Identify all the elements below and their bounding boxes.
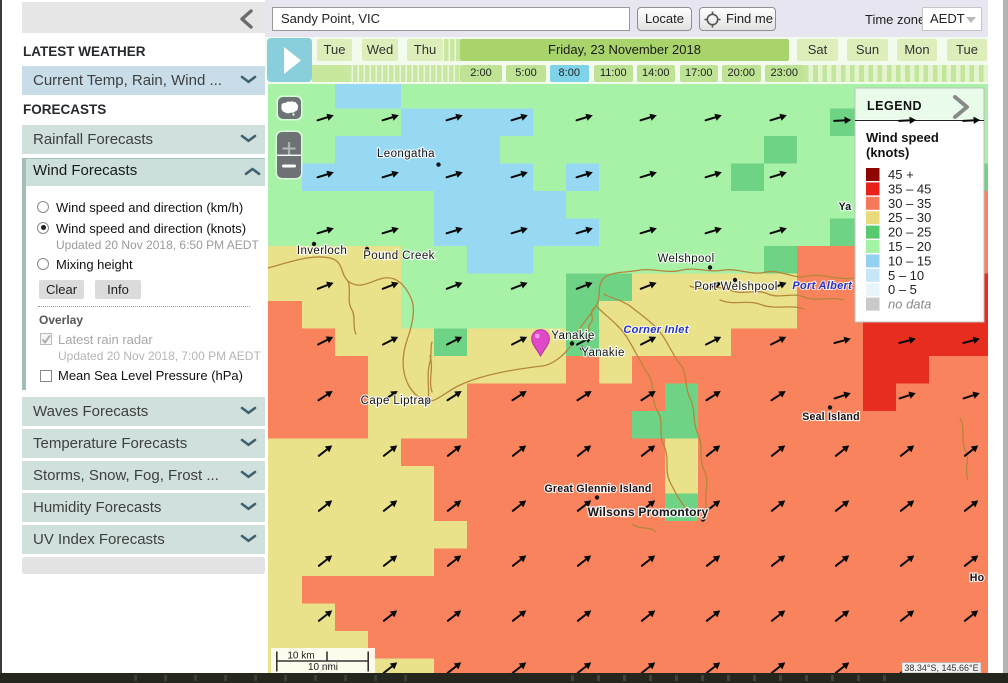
svg-text:LEGEND: LEGEND [867,99,922,113]
svg-text:Wind speed: Wind speed [866,130,939,145]
svg-text:15 – 20: 15 – 20 [888,239,931,254]
svg-text:0 – 5: 0 – 5 [888,282,917,297]
svg-text:10 – 15: 10 – 15 [888,253,931,268]
svg-text:Great Glennie Island: Great Glennie Island [544,483,651,495]
svg-text:35 – 45: 35 – 45 [888,181,931,196]
svg-text:5 – 10: 5 – 10 [888,268,924,283]
svg-text:Seal Island: Seal Island [802,411,860,423]
svg-text:Port Welshpool: Port Welshpool [694,281,777,293]
svg-text:Corner Inlet: Corner Inlet [623,324,689,336]
svg-text:(knots): (knots) [866,145,909,160]
svg-text:Ya: Ya [839,201,852,213]
svg-text:Wilsons Promontory: Wilsons Promontory [588,505,709,519]
svg-text:Port Albert C: Port Albert C [792,280,864,292]
svg-text:Ho: Ho [970,572,985,584]
svg-text:30 – 35: 30 – 35 [888,196,931,211]
svg-text:no data: no data [888,297,931,312]
svg-text:Yanakie: Yanakie [551,330,595,342]
svg-text:10 km: 10 km [287,651,314,662]
svg-text:Leongatha: Leongatha [377,148,435,160]
svg-text:20 – 25: 20 – 25 [888,225,931,240]
svg-text:Pound Creek: Pound Creek [363,250,435,262]
svg-text:38.34°S, 145.66°E: 38.34°S, 145.66°E [904,663,978,673]
svg-text:Yanakie: Yanakie [581,347,625,359]
svg-text:Inverloch: Inverloch [297,245,347,257]
svg-text:25 – 30: 25 – 30 [888,210,931,225]
svg-text:Welshpool: Welshpool [657,253,714,265]
svg-text:10 nmi: 10 nmi [308,662,338,673]
svg-text:Cape Liptrap: Cape Liptrap [361,395,432,407]
svg-text:45 +: 45 + [888,167,914,182]
